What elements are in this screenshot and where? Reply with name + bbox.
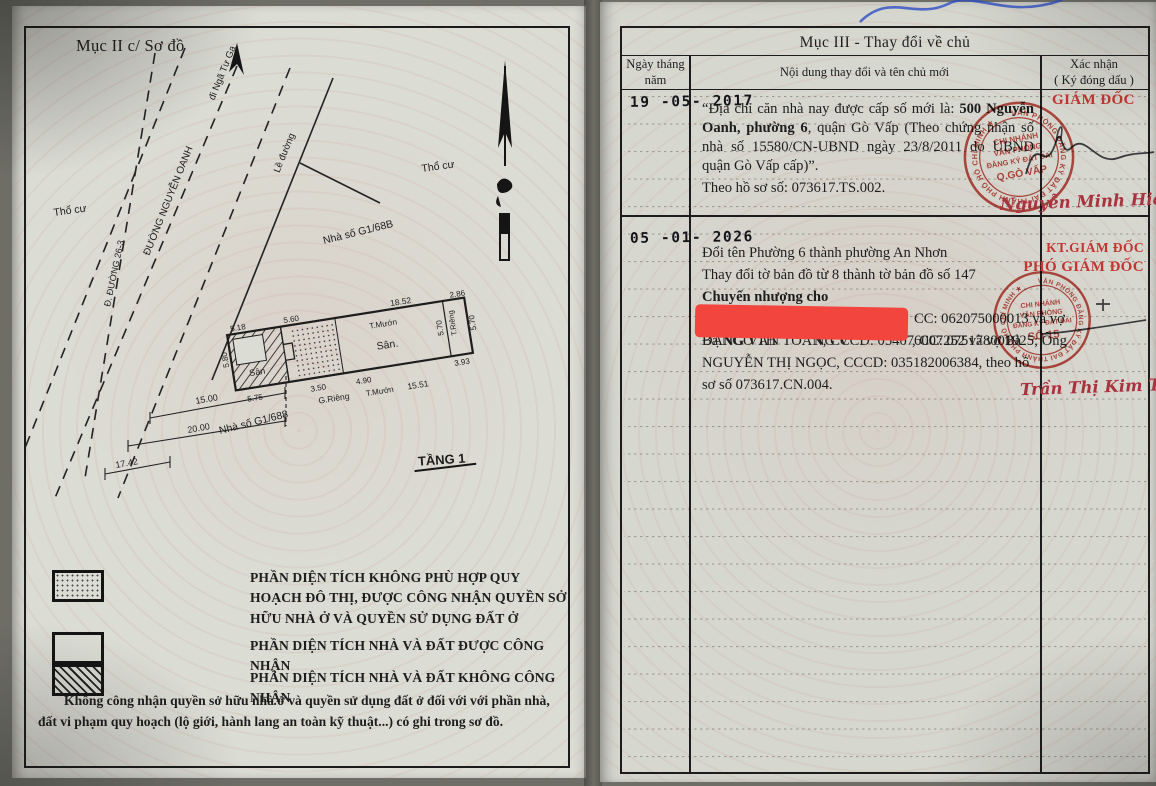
legend-swatch-nonconforming xyxy=(52,570,104,602)
column-divider-1 xyxy=(689,56,691,772)
legend-footnote: Không công nhận quyền sở hữu nhà ở và qu… xyxy=(38,690,566,732)
svg-text:15.00: 15.00 xyxy=(195,392,219,406)
legend-swatch-recognized xyxy=(52,632,104,664)
well-label: G.Riêng xyxy=(318,391,351,406)
land-plot: Sân T.Mướn Sân. 5.70 T.Riêng 5.70 2.86 3… xyxy=(215,285,486,419)
blue-ink-scribble xyxy=(856,0,1068,24)
svg-text:5.70: 5.70 xyxy=(467,314,478,331)
north-arrow xyxy=(496,60,512,260)
land-use-right-label: Thổ cư xyxy=(421,158,456,175)
svg-text:3.93: 3.93 xyxy=(454,356,471,367)
svg-text:4.90: 4.90 xyxy=(355,375,372,386)
ownership-change-table: Mục III - Thay đổi về chủ Ngày tháng năm… xyxy=(620,26,1150,774)
yard-right-label: Sân. xyxy=(376,338,399,353)
wall-bottom-label: T.Mướn xyxy=(365,385,394,398)
redaction-bar xyxy=(695,304,909,341)
svg-text:3.50: 3.50 xyxy=(310,382,327,393)
scanned-certificate-photo: Mục II c/ Sơ đồ xyxy=(0,0,1156,786)
street-name-label: ĐƯỜNG NGUYỄN OANH xyxy=(140,144,196,257)
boundary-label: Đ. ĐƯỜNG 26-3 xyxy=(102,239,126,307)
wall-top-label: T.Mướn xyxy=(369,317,398,330)
floor-label: TẦNG 1 xyxy=(413,450,476,471)
svg-text:5.70: 5.70 xyxy=(434,319,445,336)
curb-label: Lề đường xyxy=(272,132,298,175)
col-header-date: Ngày tháng năm xyxy=(622,56,689,90)
deputy-director-signature xyxy=(1036,290,1148,348)
table-header-row: Ngày tháng năm Nội dung thay đổi và tên … xyxy=(622,56,1148,90)
house-number-top-label: Nhà số G1/68B xyxy=(322,218,395,247)
col-header-confirm: Xác nhận ( Ký đóng dấu ) xyxy=(1040,56,1148,90)
road-edge-dashed xyxy=(24,48,185,478)
left-page-diagram: Mục II c/ Sơ đồ xyxy=(12,6,586,778)
cadastral-sketch: ĐƯỜNG NGUYỄN OANH đi Ngã Tư Ga Lề đường … xyxy=(24,26,566,546)
section-title-right: Mục III - Thay đổi về chủ xyxy=(622,28,1148,56)
col-header-content: Nội dung thay đổi và tên chủ mới xyxy=(689,56,1040,90)
legend-text-1: PHẦN DIỆN TÍCH KHÔNG PHÙ HỢP QUY HOẠCH Đ… xyxy=(250,568,572,629)
right-page-ownership-changes: Mục III - Thay đổi về chủ Ngày tháng năm… xyxy=(600,2,1156,782)
leader-line xyxy=(300,163,380,203)
entry2-approver-title-1: KT.GIÁM ĐỐC xyxy=(1030,240,1144,256)
svg-text:17.42: 17.42 xyxy=(115,456,139,470)
plot-area-nonconforming xyxy=(290,322,343,377)
svg-text:15.51: 15.51 xyxy=(407,378,430,391)
land-use-left-label: Thổ cư xyxy=(53,202,88,219)
row-divider xyxy=(622,215,1148,217)
section-title-left: Mục II c/ Sơ đồ xyxy=(76,36,185,56)
setback-dimensions: 15.00 20.00 17.42 xyxy=(105,376,286,480)
